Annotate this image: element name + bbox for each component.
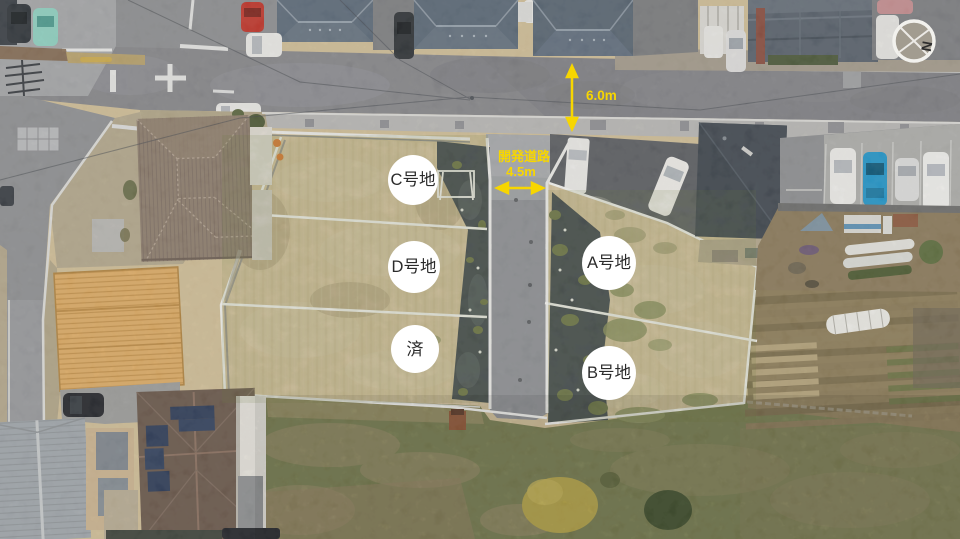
- svg-text:4.5m: 4.5m: [506, 164, 536, 179]
- svg-text:D号地: D号地: [392, 257, 437, 276]
- svg-text:6.0m: 6.0m: [586, 88, 617, 103]
- svg-text:開発道路: 開発道路: [498, 149, 551, 164]
- svg-text:済: 済: [407, 340, 424, 359]
- svg-text:C号地: C号地: [391, 170, 436, 189]
- svg-text:A号地: A号地: [587, 253, 631, 272]
- svg-text:B号地: B号地: [587, 363, 631, 382]
